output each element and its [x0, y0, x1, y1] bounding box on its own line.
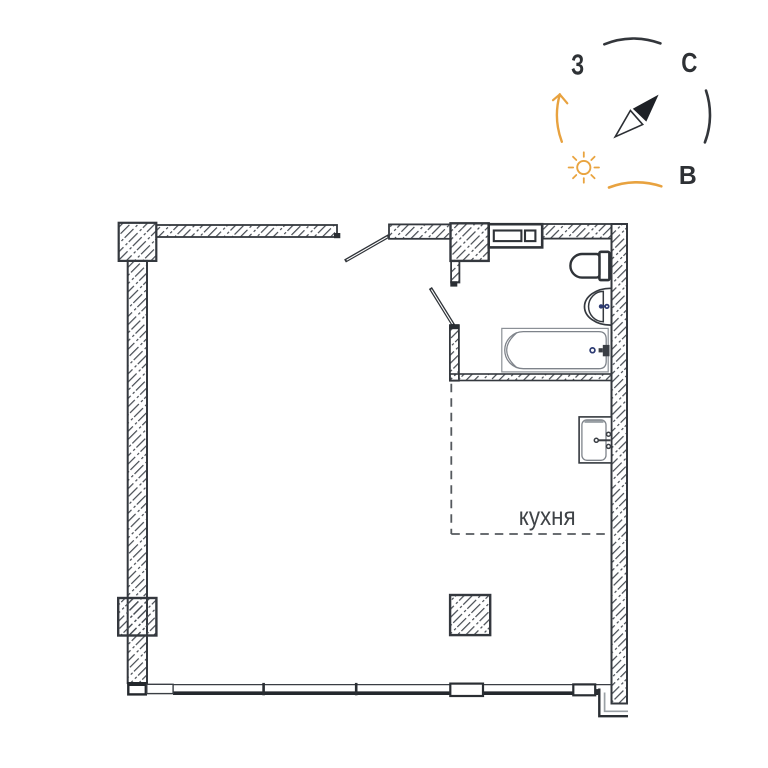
svg-text:В: В [679, 161, 697, 190]
svg-text:З: З [571, 49, 584, 81]
svg-text:кухня: кухня [519, 502, 576, 531]
svg-text:С: С [681, 48, 697, 79]
